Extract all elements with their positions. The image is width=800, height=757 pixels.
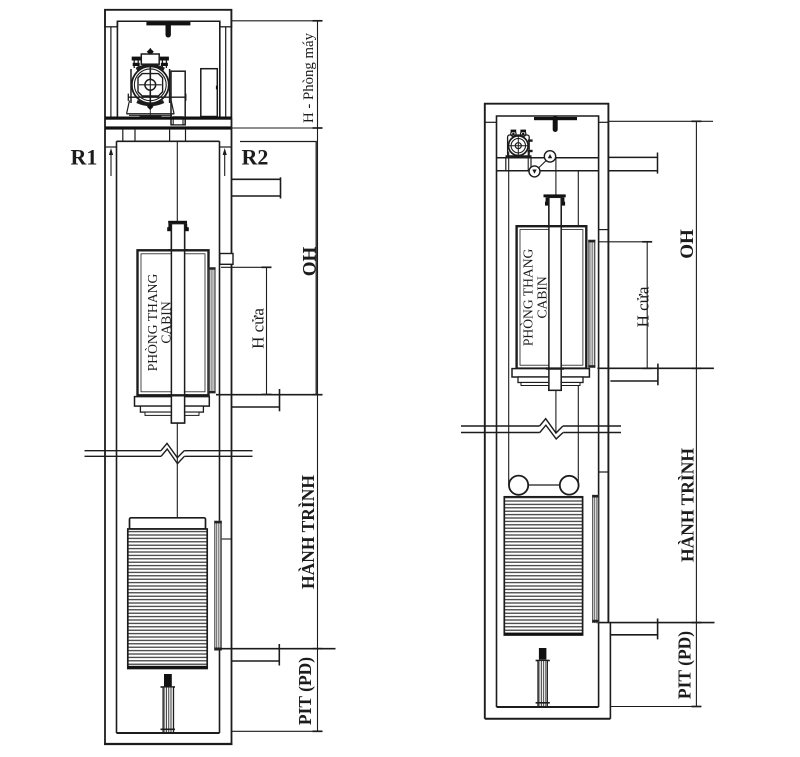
svg-text:R1: R1 (71, 145, 98, 170)
svg-text:H - Phòng máy: H - Phòng máy (301, 32, 317, 123)
svg-text:OH: OH (677, 229, 698, 259)
svg-text:PHÒNG THANG: PHÒNG THANG (520, 248, 536, 346)
svg-text:H cửa: H cửa (249, 308, 268, 349)
svg-text:R2: R2 (242, 145, 269, 170)
svg-text:CABIN: CABIN (535, 276, 550, 318)
svg-text:PIT (PD): PIT (PD) (675, 631, 695, 699)
svg-text:PIT (PD): PIT (PD) (295, 657, 315, 725)
svg-text:HÀNH TRÌNH: HÀNH TRÌNH (678, 448, 698, 562)
svg-text:HÀNH TRÌNH: HÀNH TRÌNH (298, 475, 318, 589)
svg-text:CABIN: CABIN (159, 301, 174, 343)
svg-text:H cửa: H cửa (634, 286, 653, 327)
svg-text:OH: OH (300, 247, 321, 277)
